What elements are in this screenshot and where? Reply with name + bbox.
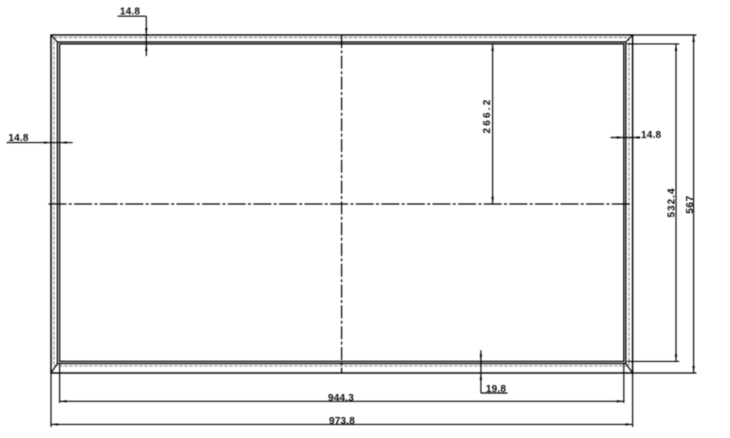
svg-text:19.8: 19.8 — [486, 384, 507, 395]
svg-text:567: 567 — [685, 195, 696, 214]
svg-text:944.3: 944.3 — [328, 393, 354, 404]
svg-text:14.8: 14.8 — [641, 130, 662, 141]
svg-text:14.8: 14.8 — [8, 133, 29, 144]
svg-text:14.8: 14.8 — [120, 7, 141, 18]
svg-text:266.2: 266.2 — [482, 97, 493, 133]
svg-text:532.4: 532.4 — [667, 187, 678, 217]
svg-text:973.8: 973.8 — [329, 416, 355, 427]
